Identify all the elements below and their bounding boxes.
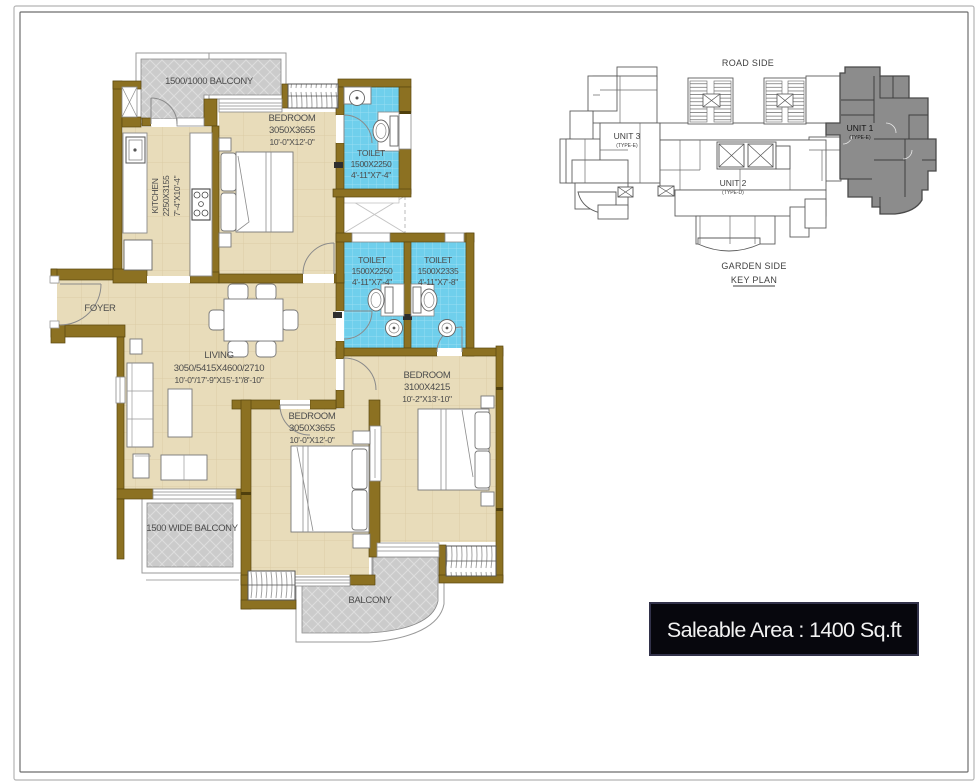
svg-text:(TYPE-E): (TYPE-E) — [616, 143, 638, 149]
svg-text:(TYPE-E): (TYPE-E) — [849, 135, 871, 141]
svg-text:(TYPE-D): (TYPE-D) — [722, 190, 744, 196]
svg-text:Saleable Area : 1400 Sq.ft: Saleable Area : 1400 Sq.ft — [667, 618, 902, 642]
svg-text:1500X2250: 1500X2250 — [352, 266, 393, 276]
svg-text:GARDEN SIDE: GARDEN SIDE — [721, 261, 786, 271]
svg-text:1500X2250: 1500X2250 — [351, 159, 392, 169]
svg-text:10'-0"X12'-0": 10'-0"X12'-0" — [269, 137, 314, 147]
svg-text:1500/1000 BALCONY: 1500/1000 BALCONY — [165, 76, 254, 87]
svg-text:3050/5415X4600/2710: 3050/5415X4600/2710 — [174, 363, 264, 374]
svg-text:TOILET: TOILET — [357, 148, 385, 158]
svg-text:UNIT 3: UNIT 3 — [614, 131, 641, 141]
svg-text:2250X3155: 2250X3155 — [161, 175, 171, 216]
svg-text:KITCHEN: KITCHEN — [150, 178, 160, 213]
svg-text:ROAD SIDE: ROAD SIDE — [722, 58, 774, 68]
svg-text:3050X3655: 3050X3655 — [269, 125, 315, 136]
svg-text:4'-11"X7'-4": 4'-11"X7'-4" — [352, 277, 392, 287]
svg-text:10'-0"X12'-0": 10'-0"X12'-0" — [289, 435, 334, 445]
svg-text:1500X2335: 1500X2335 — [418, 266, 459, 276]
svg-text:4'-11"X7'-8": 4'-11"X7'-8" — [418, 277, 458, 287]
svg-text:TOILET: TOILET — [424, 255, 452, 265]
svg-text:3100X4215: 3100X4215 — [404, 382, 450, 393]
svg-text:3050X3655: 3050X3655 — [289, 423, 335, 434]
svg-text:BEDROOM: BEDROOM — [269, 113, 316, 124]
svg-text:LIVING: LIVING — [204, 350, 233, 361]
svg-text:7'-4"X10'-4": 7'-4"X10'-4" — [172, 175, 182, 216]
svg-text:UNIT 2: UNIT 2 — [720, 178, 747, 188]
svg-text:BEDROOM: BEDROOM — [289, 411, 336, 422]
svg-text:10'-0"/17'-9"X15'-1"/8'-10": 10'-0"/17'-9"X15'-1"/8'-10" — [175, 375, 264, 385]
svg-text:10'-2"X13'-10": 10'-2"X13'-10" — [402, 394, 452, 404]
svg-text:FOYER: FOYER — [84, 303, 116, 314]
svg-text:BEDROOM: BEDROOM — [404, 370, 451, 381]
svg-text:TOILET: TOILET — [358, 255, 386, 265]
svg-text:KEY PLAN: KEY PLAN — [731, 275, 777, 285]
svg-text:UNIT 1: UNIT 1 — [847, 123, 874, 133]
svg-text:1500 WIDE BALCONY: 1500 WIDE BALCONY — [146, 523, 238, 534]
svg-text:BALCONY: BALCONY — [348, 595, 392, 606]
svg-text:4'-11"X7'-4": 4'-11"X7'-4" — [351, 170, 391, 180]
